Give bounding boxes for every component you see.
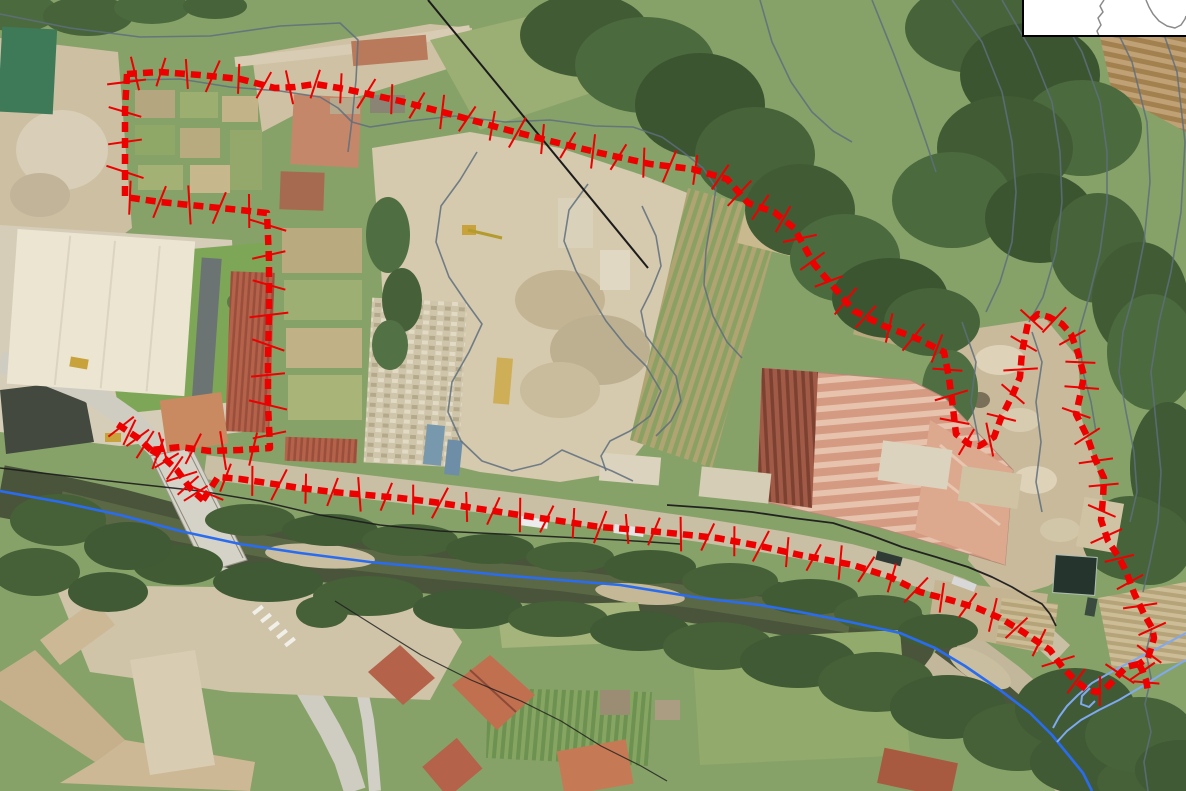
shed [600, 690, 630, 715]
salmon-roof-house [160, 392, 229, 452]
white-warehouse [7, 229, 195, 396]
block-stack [600, 250, 630, 290]
farm-house-2 [279, 171, 324, 211]
debris [1040, 518, 1080, 542]
aerial-map-view [0, 0, 1186, 791]
inset-map-frame [1022, 0, 1186, 36]
row-crops-2 [996, 598, 1058, 652]
gravel-patch [10, 173, 70, 217]
block-stack [558, 198, 593, 248]
excavator [105, 433, 121, 442]
water-tank-pool [1053, 555, 1098, 596]
debris [1000, 408, 1040, 432]
tree-strip [366, 197, 410, 273]
map-canvas [0, 0, 1186, 791]
gravel-pile [520, 362, 600, 418]
shed [655, 700, 680, 720]
boundary-tick [391, 84, 392, 114]
green-roof-warehouse [0, 27, 57, 115]
tree-strip [372, 320, 408, 370]
inset-map [1022, 0, 1186, 36]
boundary-tick [681, 517, 682, 551]
red-tile-strip-building [285, 437, 358, 463]
boundary-tick [1065, 362, 1095, 363]
garden-plots-northwest [135, 90, 262, 193]
